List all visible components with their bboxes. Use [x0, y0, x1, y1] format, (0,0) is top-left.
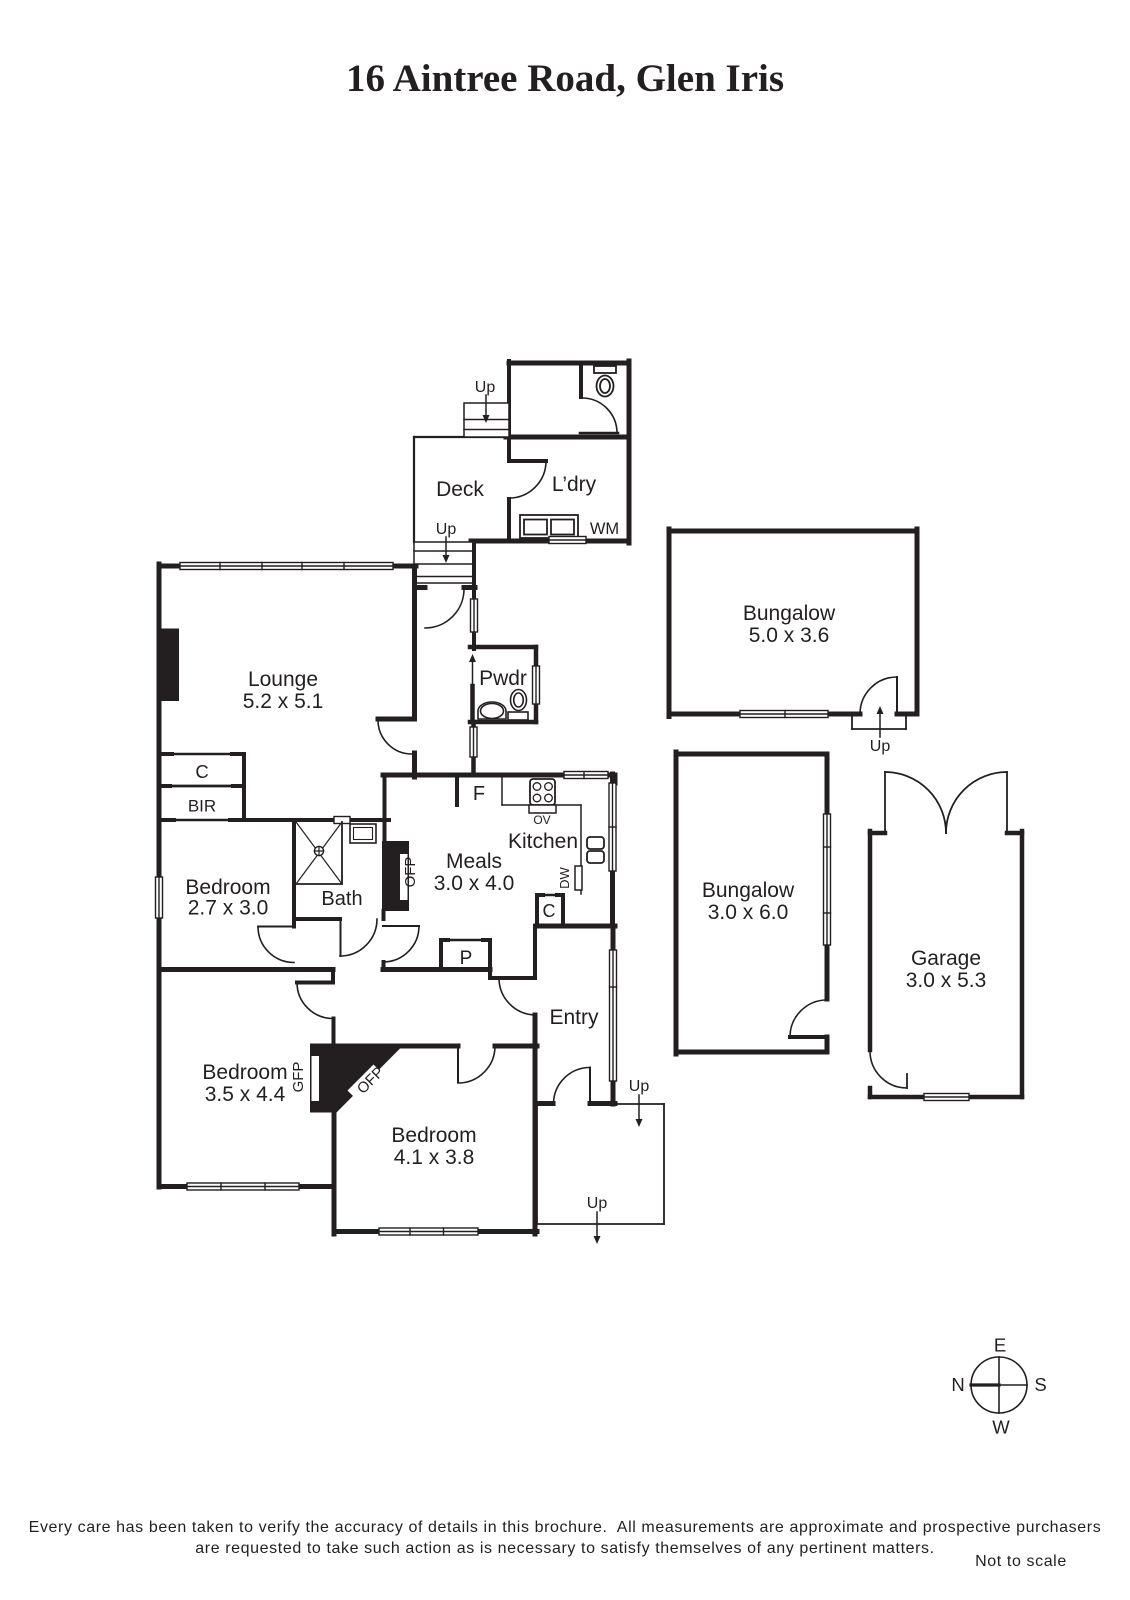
svg-text:Bedroom: Bedroom: [391, 1124, 476, 1147]
svg-text:3.0 x 6.0: 3.0 x 6.0: [708, 901, 789, 924]
svg-text:4.1 x 3.8: 4.1 x 3.8: [394, 1146, 475, 1169]
svg-text:E: E: [994, 1335, 1006, 1356]
svg-text:5.0 x 3.6: 5.0 x 3.6: [749, 624, 830, 647]
svg-text:Up: Up: [870, 738, 891, 755]
svg-text:C: C: [543, 901, 556, 921]
svg-text:DW: DW: [557, 866, 572, 888]
svg-text:16 Aintree Road, Glen Iris: 16 Aintree Road, Glen Iris: [346, 57, 784, 100]
svg-text:OV: OV: [533, 813, 550, 827]
svg-text:Deck: Deck: [436, 478, 484, 501]
svg-text:Garage: Garage: [911, 947, 981, 970]
svg-text:F: F: [473, 783, 485, 805]
svg-text:Bedroom: Bedroom: [202, 1061, 287, 1084]
svg-text:S: S: [1034, 1374, 1046, 1395]
svg-text:Up: Up: [475, 379, 496, 396]
svg-text:L’dry: L’dry: [552, 473, 597, 496]
svg-text:Kitchen: Kitchen: [508, 830, 578, 853]
svg-text:Pwdr: Pwdr: [479, 667, 527, 690]
svg-text:are requested to take such act: are requested to take such action as is …: [195, 1540, 934, 1557]
svg-text:P: P: [460, 948, 473, 969]
svg-text:Up: Up: [629, 1078, 650, 1095]
svg-text:WM: WM: [590, 520, 619, 538]
svg-text:Not to scale: Not to scale: [975, 1553, 1067, 1570]
svg-text:Up: Up: [436, 521, 457, 538]
svg-text:Lounge: Lounge: [248, 668, 318, 691]
svg-text:C: C: [195, 761, 208, 782]
svg-text:Every care has been taken to v: Every care has been taken to verify the …: [29, 1519, 1102, 1536]
svg-text:BIR: BIR: [188, 797, 216, 816]
svg-text:Bungalow: Bungalow: [702, 879, 795, 902]
svg-text:Bath: Bath: [321, 888, 362, 910]
svg-text:Meals: Meals: [446, 850, 502, 873]
svg-text:5.2 x 5.1: 5.2 x 5.1: [243, 690, 324, 713]
svg-text:OFP: OFP: [402, 857, 419, 888]
svg-text:Bungalow: Bungalow: [743, 602, 836, 625]
svg-text:Up: Up: [587, 1195, 608, 1212]
svg-text:3.0 x 5.3: 3.0 x 5.3: [906, 969, 987, 992]
svg-text:GFP: GFP: [290, 1062, 307, 1093]
svg-text:W: W: [992, 1417, 1010, 1438]
svg-text:3.0 x 4.0: 3.0 x 4.0: [434, 872, 515, 895]
svg-text:2.7 x 3.0: 2.7 x 3.0: [188, 897, 269, 920]
svg-text:3.5 x 4.4: 3.5 x 4.4: [205, 1083, 286, 1106]
svg-text:Entry: Entry: [549, 1006, 599, 1029]
svg-text:N: N: [951, 1374, 964, 1395]
